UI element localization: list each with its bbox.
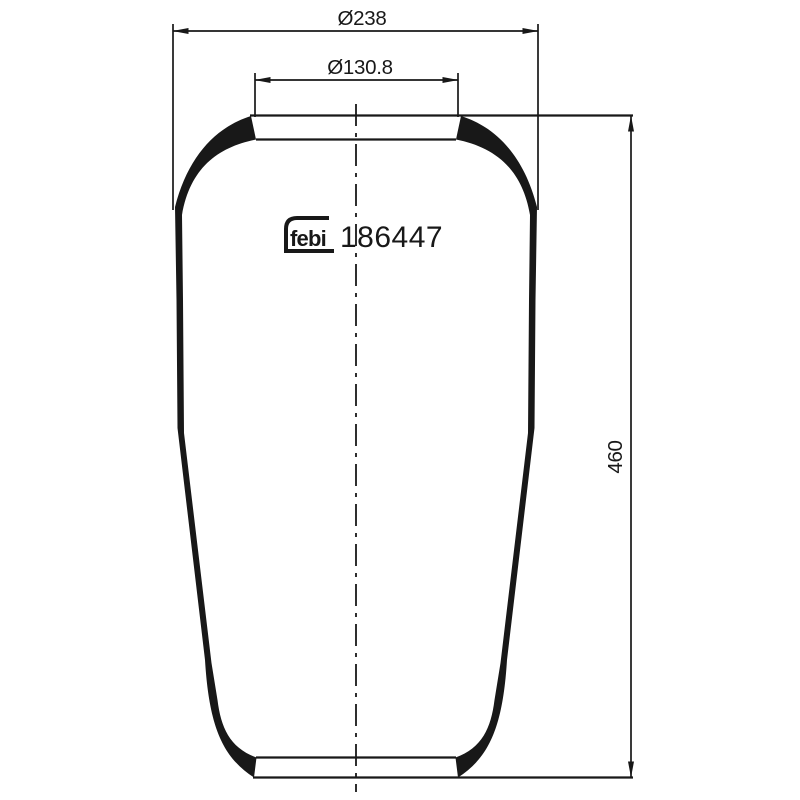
febi-logo: febi xyxy=(286,218,334,251)
technical-drawing-canvas: Ø238 Ø130.8 460 febi 186447 xyxy=(0,0,800,800)
bellows-right-wall xyxy=(456,116,538,778)
dim-neck-diameter-label: Ø130.8 xyxy=(327,56,392,79)
air-spring-technical-drawing-page: Ø238 Ø130.8 460 febi 186447 xyxy=(0,0,800,800)
febi-logo-text: febi xyxy=(290,226,326,251)
bellows-left-wall xyxy=(175,116,257,778)
part-number-text: 186447 xyxy=(340,221,443,254)
dim-outer-diameter-label: Ø238 xyxy=(338,7,387,30)
dim-height-label: 460 xyxy=(604,440,627,473)
